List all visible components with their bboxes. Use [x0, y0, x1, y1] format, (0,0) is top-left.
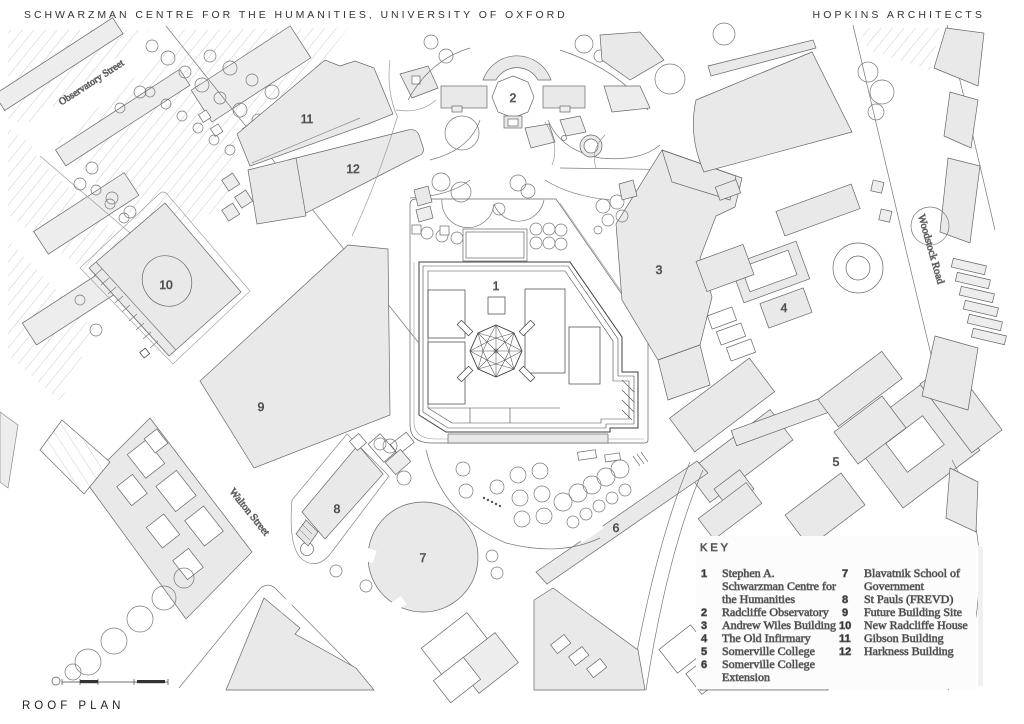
svg-text:3: 3 [701, 620, 707, 632]
svg-text:9: 9 [842, 607, 848, 619]
svg-text:6: 6 [701, 659, 707, 671]
svg-text:the Humanities: the Humanities [722, 592, 795, 606]
svg-text:9: 9 [258, 400, 265, 414]
svg-text:1: 1 [493, 279, 500, 293]
svg-text:6: 6 [613, 521, 620, 535]
svg-text:5: 5 [701, 646, 707, 658]
svg-text:St Pauls (FREVD): St Pauls (FREVD) [864, 592, 953, 606]
svg-text:10: 10 [159, 278, 173, 292]
svg-text:Stephen A.: Stephen A. [722, 566, 775, 580]
svg-text:Blavatnik School of: Blavatnik School of [864, 566, 960, 580]
svg-text:HOPKINS ARCHITECTS: HOPKINS ARCHITECTS [813, 9, 985, 21]
svg-text:Andrew Wiles Building: Andrew Wiles Building [722, 618, 836, 632]
svg-text:Harkness Building: Harkness Building [864, 644, 954, 658]
svg-text:10: 10 [839, 620, 851, 632]
svg-text:Future Building Site: Future Building Site [864, 605, 962, 619]
svg-text:Gibson Building: Gibson Building [864, 631, 944, 645]
svg-text:KEY: KEY [700, 542, 731, 554]
svg-text:3: 3 [656, 263, 663, 277]
svg-text:12: 12 [346, 162, 360, 176]
svg-text:11: 11 [301, 112, 314, 126]
svg-text:8: 8 [842, 594, 848, 606]
svg-text:Extension: Extension [722, 670, 770, 684]
svg-text:The Old Infirmary: The Old Infirmary [722, 631, 811, 645]
svg-text:2: 2 [701, 607, 707, 619]
svg-text:Schwarzman Centre for: Schwarzman Centre for [722, 579, 836, 593]
svg-text:1: 1 [701, 568, 707, 580]
svg-text:12: 12 [839, 646, 851, 658]
svg-text:7: 7 [842, 568, 848, 580]
svg-text:8: 8 [334, 502, 341, 516]
svg-text:5: 5 [833, 455, 840, 469]
svg-text:2: 2 [510, 91, 517, 105]
svg-text:Somerville College: Somerville College [722, 657, 815, 671]
svg-text:New Radcliffe House: New Radcliffe House [864, 618, 968, 632]
svg-text:11: 11 [839, 633, 851, 645]
svg-text:4: 4 [701, 633, 708, 645]
svg-text:Somerville College: Somerville College [722, 644, 815, 658]
svg-text:SCHWARZMAN CENTRE FOR THE HUMA: SCHWARZMAN CENTRE FOR THE HUMANITIES, UN… [24, 9, 568, 21]
svg-text:4: 4 [781, 301, 788, 315]
svg-text:ROOF PLAN: ROOF PLAN [22, 700, 124, 712]
svg-text:Government: Government [864, 579, 925, 593]
svg-text:7: 7 [420, 551, 427, 565]
svg-text:Radcliffe Observatory: Radcliffe Observatory [722, 605, 829, 619]
